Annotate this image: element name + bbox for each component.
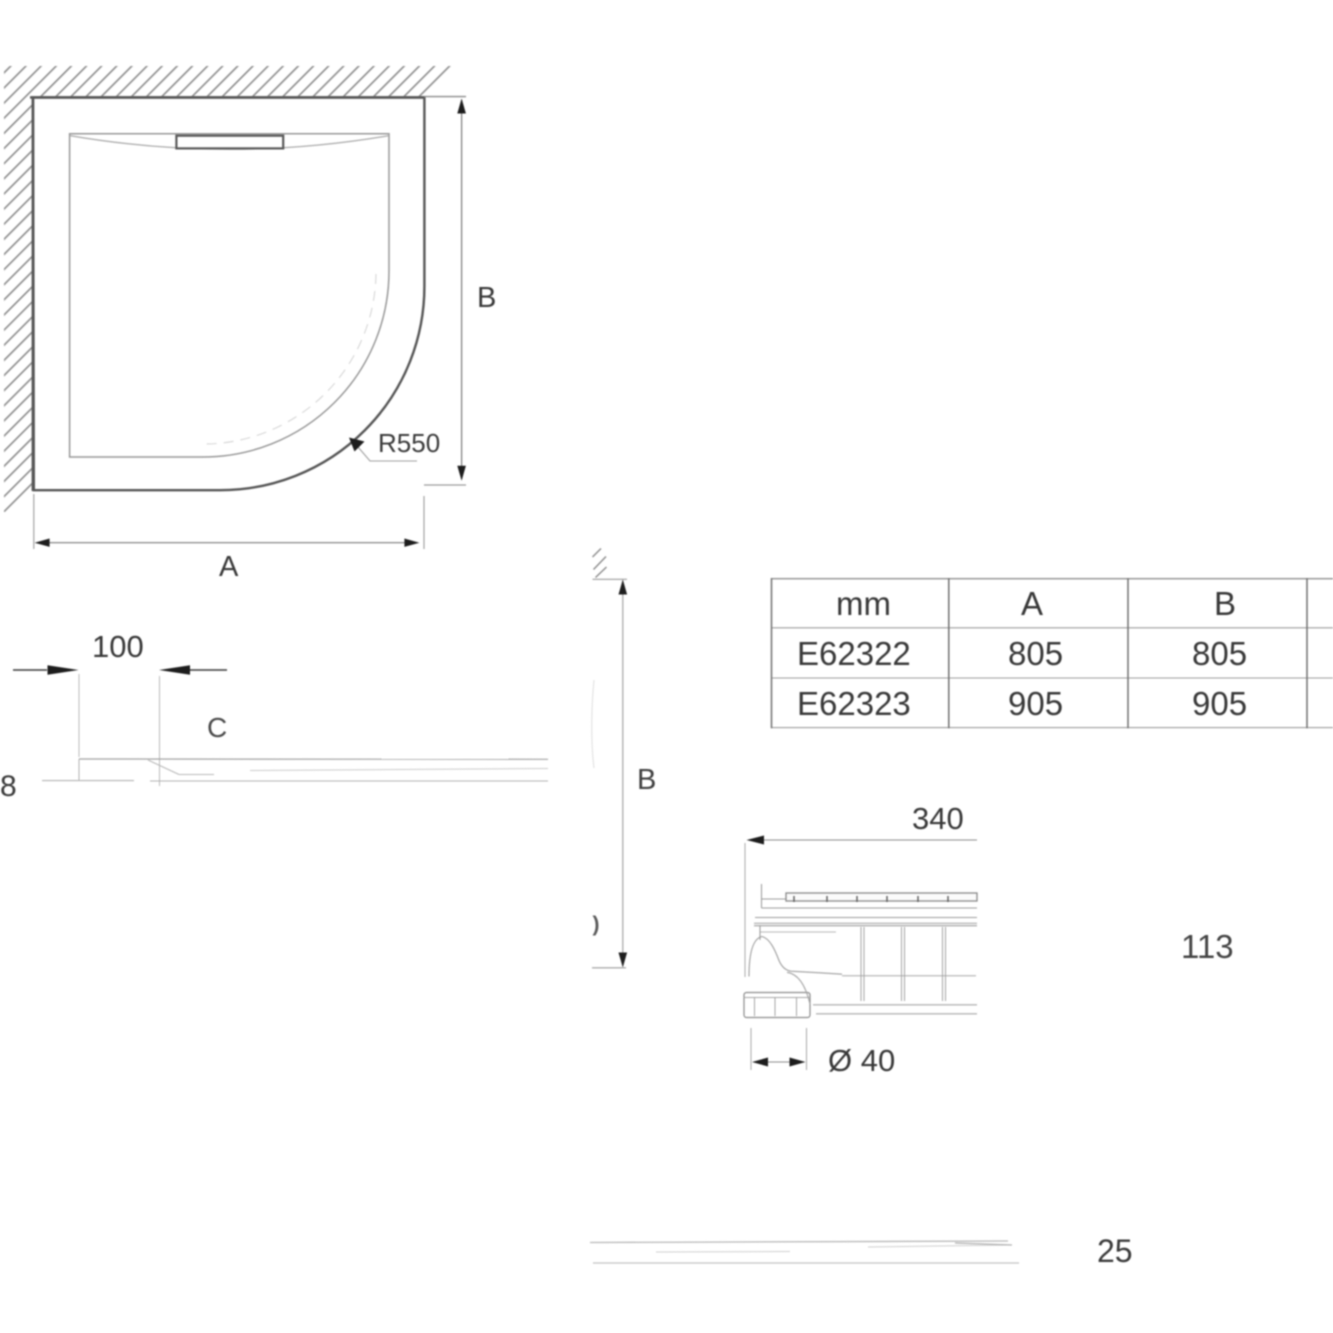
svg-text:B: B: [637, 764, 656, 796]
svg-text:A: A: [1021, 585, 1043, 622]
svg-text:C: C: [207, 712, 227, 743]
svg-text:A: A: [219, 551, 239, 583]
svg-text:R550: R550: [378, 428, 440, 458]
svg-text:100: 100: [92, 629, 144, 664]
svg-text:E62322: E62322: [797, 635, 911, 672]
svg-text:805: 805: [1008, 635, 1063, 672]
svg-text:Ø 40: Ø 40: [828, 1043, 895, 1078]
svg-text:E62323: E62323: [797, 685, 911, 722]
svg-text:113: 113: [1181, 928, 1234, 965]
svg-text:25: 25: [1097, 1233, 1133, 1269]
svg-text:): ): [593, 913, 600, 936]
svg-text:805: 805: [1192, 635, 1247, 672]
svg-text:B: B: [1214, 585, 1236, 622]
svg-text:905: 905: [1192, 685, 1247, 722]
svg-text:mm: mm: [836, 585, 891, 622]
svg-text:340: 340: [912, 801, 964, 836]
svg-text:905: 905: [1008, 685, 1063, 722]
svg-text:B: B: [477, 282, 496, 314]
svg-text:8: 8: [0, 770, 17, 803]
